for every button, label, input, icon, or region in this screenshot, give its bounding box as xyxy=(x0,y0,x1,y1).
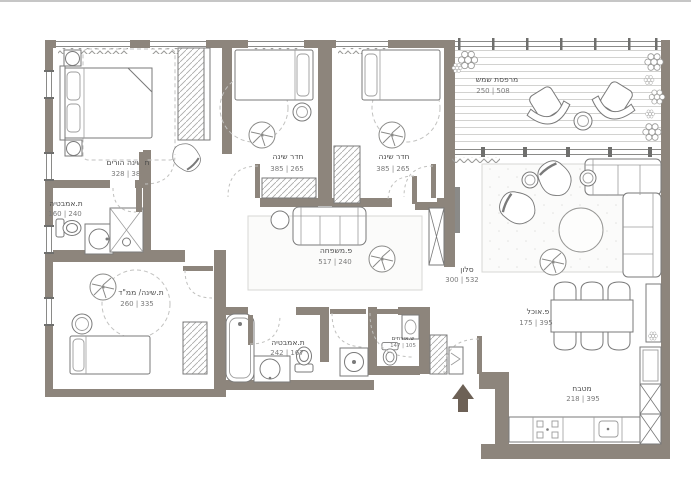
plant-icon xyxy=(649,90,665,104)
room-dims: 385 | 265 xyxy=(270,165,304,173)
sofa xyxy=(293,207,366,245)
room-label: סלון xyxy=(460,265,473,274)
door-leaf xyxy=(477,336,482,374)
coat-closet xyxy=(430,335,447,374)
door-leaf xyxy=(248,315,253,345)
door-leaf xyxy=(183,266,213,271)
dining-chair-icon xyxy=(608,282,630,300)
entrance-arrow-icon xyxy=(452,384,474,412)
tall-cabinet xyxy=(640,414,661,444)
toilet-icon xyxy=(56,219,81,237)
room-dims: 218 | 395 xyxy=(566,395,600,403)
pillow xyxy=(67,72,80,100)
single-bed xyxy=(362,50,440,100)
room-label: ת.שינה/ ממ"ד xyxy=(118,288,163,297)
room-dims: 517 | 240 xyxy=(318,258,352,266)
room-dims: 147 | 105 xyxy=(390,343,416,349)
room-label: ת.אמבטיה xyxy=(271,338,305,347)
room-safe-room: ת.שינה/ ממ"ד 260 | 335 xyxy=(70,266,213,374)
room-dims: 300 | 532 xyxy=(445,276,479,284)
room-master-bedroom: ת.שינה הורים 328 | 382 xyxy=(60,48,210,178)
door-leaf xyxy=(139,152,145,185)
room-dims: 385 | 265 xyxy=(376,165,410,173)
nightstand xyxy=(65,140,82,156)
room-label: ת.אמבטיה xyxy=(49,199,83,208)
plant-icon xyxy=(452,63,462,72)
dining-chair-icon xyxy=(554,332,576,350)
curtain-zigzag xyxy=(452,157,500,163)
door-leaf xyxy=(255,164,260,198)
floor-plan-canvas: ת.שינה הורים 328 | 382 ת.אמבטיה 160 | 24… xyxy=(0,0,691,482)
dining-table xyxy=(551,300,633,332)
kitchen-counter xyxy=(509,417,640,442)
door-leaf xyxy=(136,186,142,212)
door-leaf xyxy=(431,164,436,198)
single-bed xyxy=(70,336,150,374)
sink xyxy=(85,224,113,254)
room-bathroom: ת.אמבטיה 242 | 167 xyxy=(226,309,368,382)
nightstand xyxy=(64,50,81,66)
wardrobe xyxy=(334,146,360,203)
floor-plan: ת.שינה הורים 328 | 382 ת.אמבטיה 160 | 24… xyxy=(0,2,691,480)
room-label: מרפסת שמש xyxy=(476,75,518,84)
plant-icon xyxy=(648,332,657,340)
shower xyxy=(110,208,143,252)
armchair-icon xyxy=(167,138,205,176)
shaft-column xyxy=(429,208,444,265)
plant-icon xyxy=(645,54,663,71)
room-label: חדר שינה xyxy=(379,152,410,161)
door-leaf xyxy=(330,309,366,314)
wardrobe xyxy=(178,48,210,140)
ceiling-fan-icon xyxy=(90,274,116,300)
door-swing xyxy=(332,313,364,347)
door-swing xyxy=(228,166,258,197)
dining-chair-icon xyxy=(608,332,630,350)
plant-icon xyxy=(645,110,654,118)
plant-icon xyxy=(458,51,477,68)
room-bedroom-1: חדר שינה 385 | 265 xyxy=(220,50,316,198)
room-label: פ.אוכל xyxy=(527,307,550,316)
room-dims: 250 | 508 xyxy=(476,87,510,95)
stool xyxy=(293,103,311,121)
dining-chair-icon xyxy=(554,282,576,300)
pillow xyxy=(297,54,309,96)
pillow xyxy=(73,339,84,371)
double-bed xyxy=(60,66,152,140)
room-label: מטבח xyxy=(572,384,591,393)
pouf xyxy=(271,211,289,229)
side-table xyxy=(580,170,596,186)
room-dims: 242 | 167 xyxy=(270,349,304,357)
room-master-bathroom: ת.אמבטיה 160 | 240 xyxy=(48,199,143,254)
room-label: חדר שינה xyxy=(273,152,304,161)
room-bedroom-2: חדר שינה 385 | 265 xyxy=(334,50,440,203)
round-rug xyxy=(559,208,603,252)
tv-screen xyxy=(455,187,460,233)
ceiling-fan-icon xyxy=(249,122,275,148)
plant-icon xyxy=(644,75,654,84)
wardrobe xyxy=(183,322,207,374)
ceiling-fan-icon xyxy=(369,246,395,272)
door-swing xyxy=(185,270,212,298)
room-label: פ.משפחה xyxy=(320,246,353,255)
ceiling-fan-icon xyxy=(379,122,405,148)
room-dining-corner: פ.אוכל 175 | 395 xyxy=(519,282,633,350)
sink xyxy=(254,356,290,382)
ceiling-fan-icon xyxy=(540,249,566,275)
dresser xyxy=(262,178,316,198)
room-dims: 175 | 395 xyxy=(519,319,553,327)
single-bed xyxy=(235,50,313,100)
room-dims: 260 | 335 xyxy=(120,300,154,308)
door-leaf xyxy=(368,309,414,314)
pillow xyxy=(67,104,80,132)
side-table xyxy=(522,172,538,188)
pillow xyxy=(365,54,377,96)
dining-chair-icon xyxy=(581,332,603,350)
washing-machine xyxy=(340,348,368,376)
dining-chair-icon xyxy=(581,282,603,300)
room-sun-balcony: מרפסת שמש 250 | 508 xyxy=(452,48,665,148)
kitchen-sink xyxy=(599,421,618,437)
entry-lobby xyxy=(430,335,482,412)
tall-cabinet xyxy=(640,384,661,414)
room-dims: 160 | 240 xyxy=(48,210,82,218)
plant-icon xyxy=(643,124,661,141)
room-kitchen: מטבח 218 | 395 xyxy=(509,347,661,444)
shoe-cabinet xyxy=(449,347,463,374)
fridge xyxy=(640,347,661,384)
stool xyxy=(72,314,92,334)
side-table xyxy=(574,112,592,130)
door-leaf xyxy=(412,176,417,204)
room-label: ש.אורחים xyxy=(392,336,415,342)
